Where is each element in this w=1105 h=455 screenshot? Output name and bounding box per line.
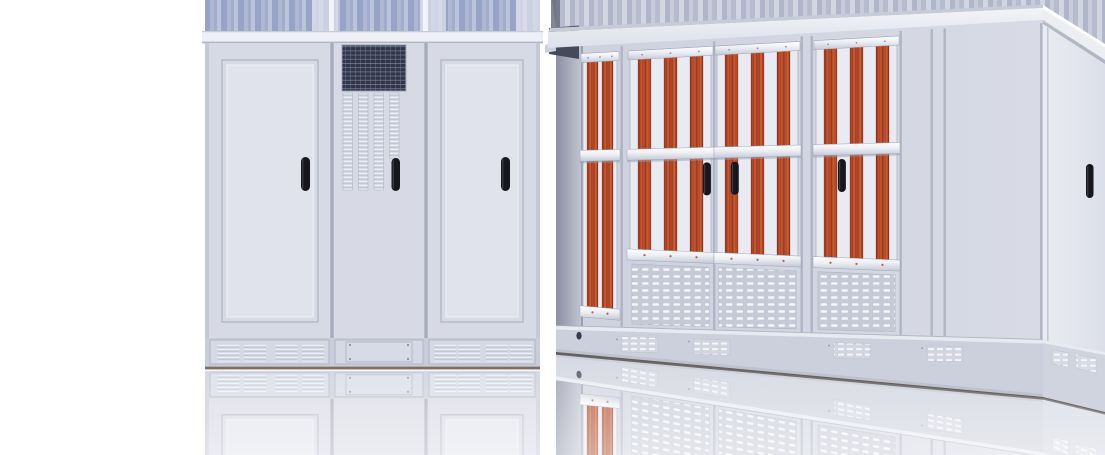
- door-handle: [392, 158, 401, 191]
- louver-strip: [390, 93, 400, 158]
- plinth-vent: [694, 339, 730, 355]
- slat-bay: [580, 52, 620, 321]
- vent-grid: [719, 268, 796, 329]
- corner-bolt: [576, 332, 581, 340]
- scene-canvas: [0, 0, 1105, 455]
- mesh-panel: [342, 45, 406, 91]
- slat-bay: [627, 46, 714, 326]
- door-handle: [301, 157, 310, 191]
- left-cabinet-body: [205, 43, 540, 366]
- plinth-vent: [244, 344, 266, 362]
- vent-grid: [632, 264, 709, 326]
- right-cabinet-front: [556, 17, 1043, 398]
- front-left-corner: [556, 46, 583, 356]
- sky-reflection-band: [205, 0, 540, 31]
- plinth: [205, 338, 540, 366]
- vent-grid: [818, 272, 895, 332]
- right-cabinet-side: [1043, 22, 1105, 413]
- door-handle: [703, 162, 711, 195]
- plinth-vent: [275, 344, 297, 362]
- plinth-vent: [510, 344, 532, 362]
- plinth-vent: [302, 344, 324, 362]
- plinth-vent: [217, 344, 239, 362]
- plinth-vent: [458, 344, 480, 362]
- plinth-vent: [834, 343, 870, 359]
- door-handle: [731, 162, 739, 195]
- panel-door: [222, 60, 318, 322]
- louver-strip: [374, 93, 384, 190]
- louver-strip: [343, 93, 353, 190]
- door-handle: [838, 159, 846, 192]
- louver-strip: [359, 93, 369, 190]
- plinth-vent: [486, 344, 508, 362]
- mid-rail: [714, 145, 801, 158]
- mid-rail: [580, 149, 620, 161]
- ventilation-door: [342, 45, 406, 191]
- panel-door: [441, 60, 523, 322]
- door-handle: [501, 157, 510, 191]
- plinth-vent: [434, 344, 456, 362]
- mid-rail: [813, 143, 900, 156]
- mid-rail: [627, 147, 714, 160]
- slat-bay: [813, 36, 900, 332]
- plinth-vent: [927, 346, 963, 362]
- side-door-handle: [1086, 164, 1094, 198]
- plinth-vent: [622, 337, 658, 353]
- product-render: [0, 0, 1105, 455]
- cabinet-top-rim: [202, 31, 543, 43]
- slat-bay: [714, 42, 801, 329]
